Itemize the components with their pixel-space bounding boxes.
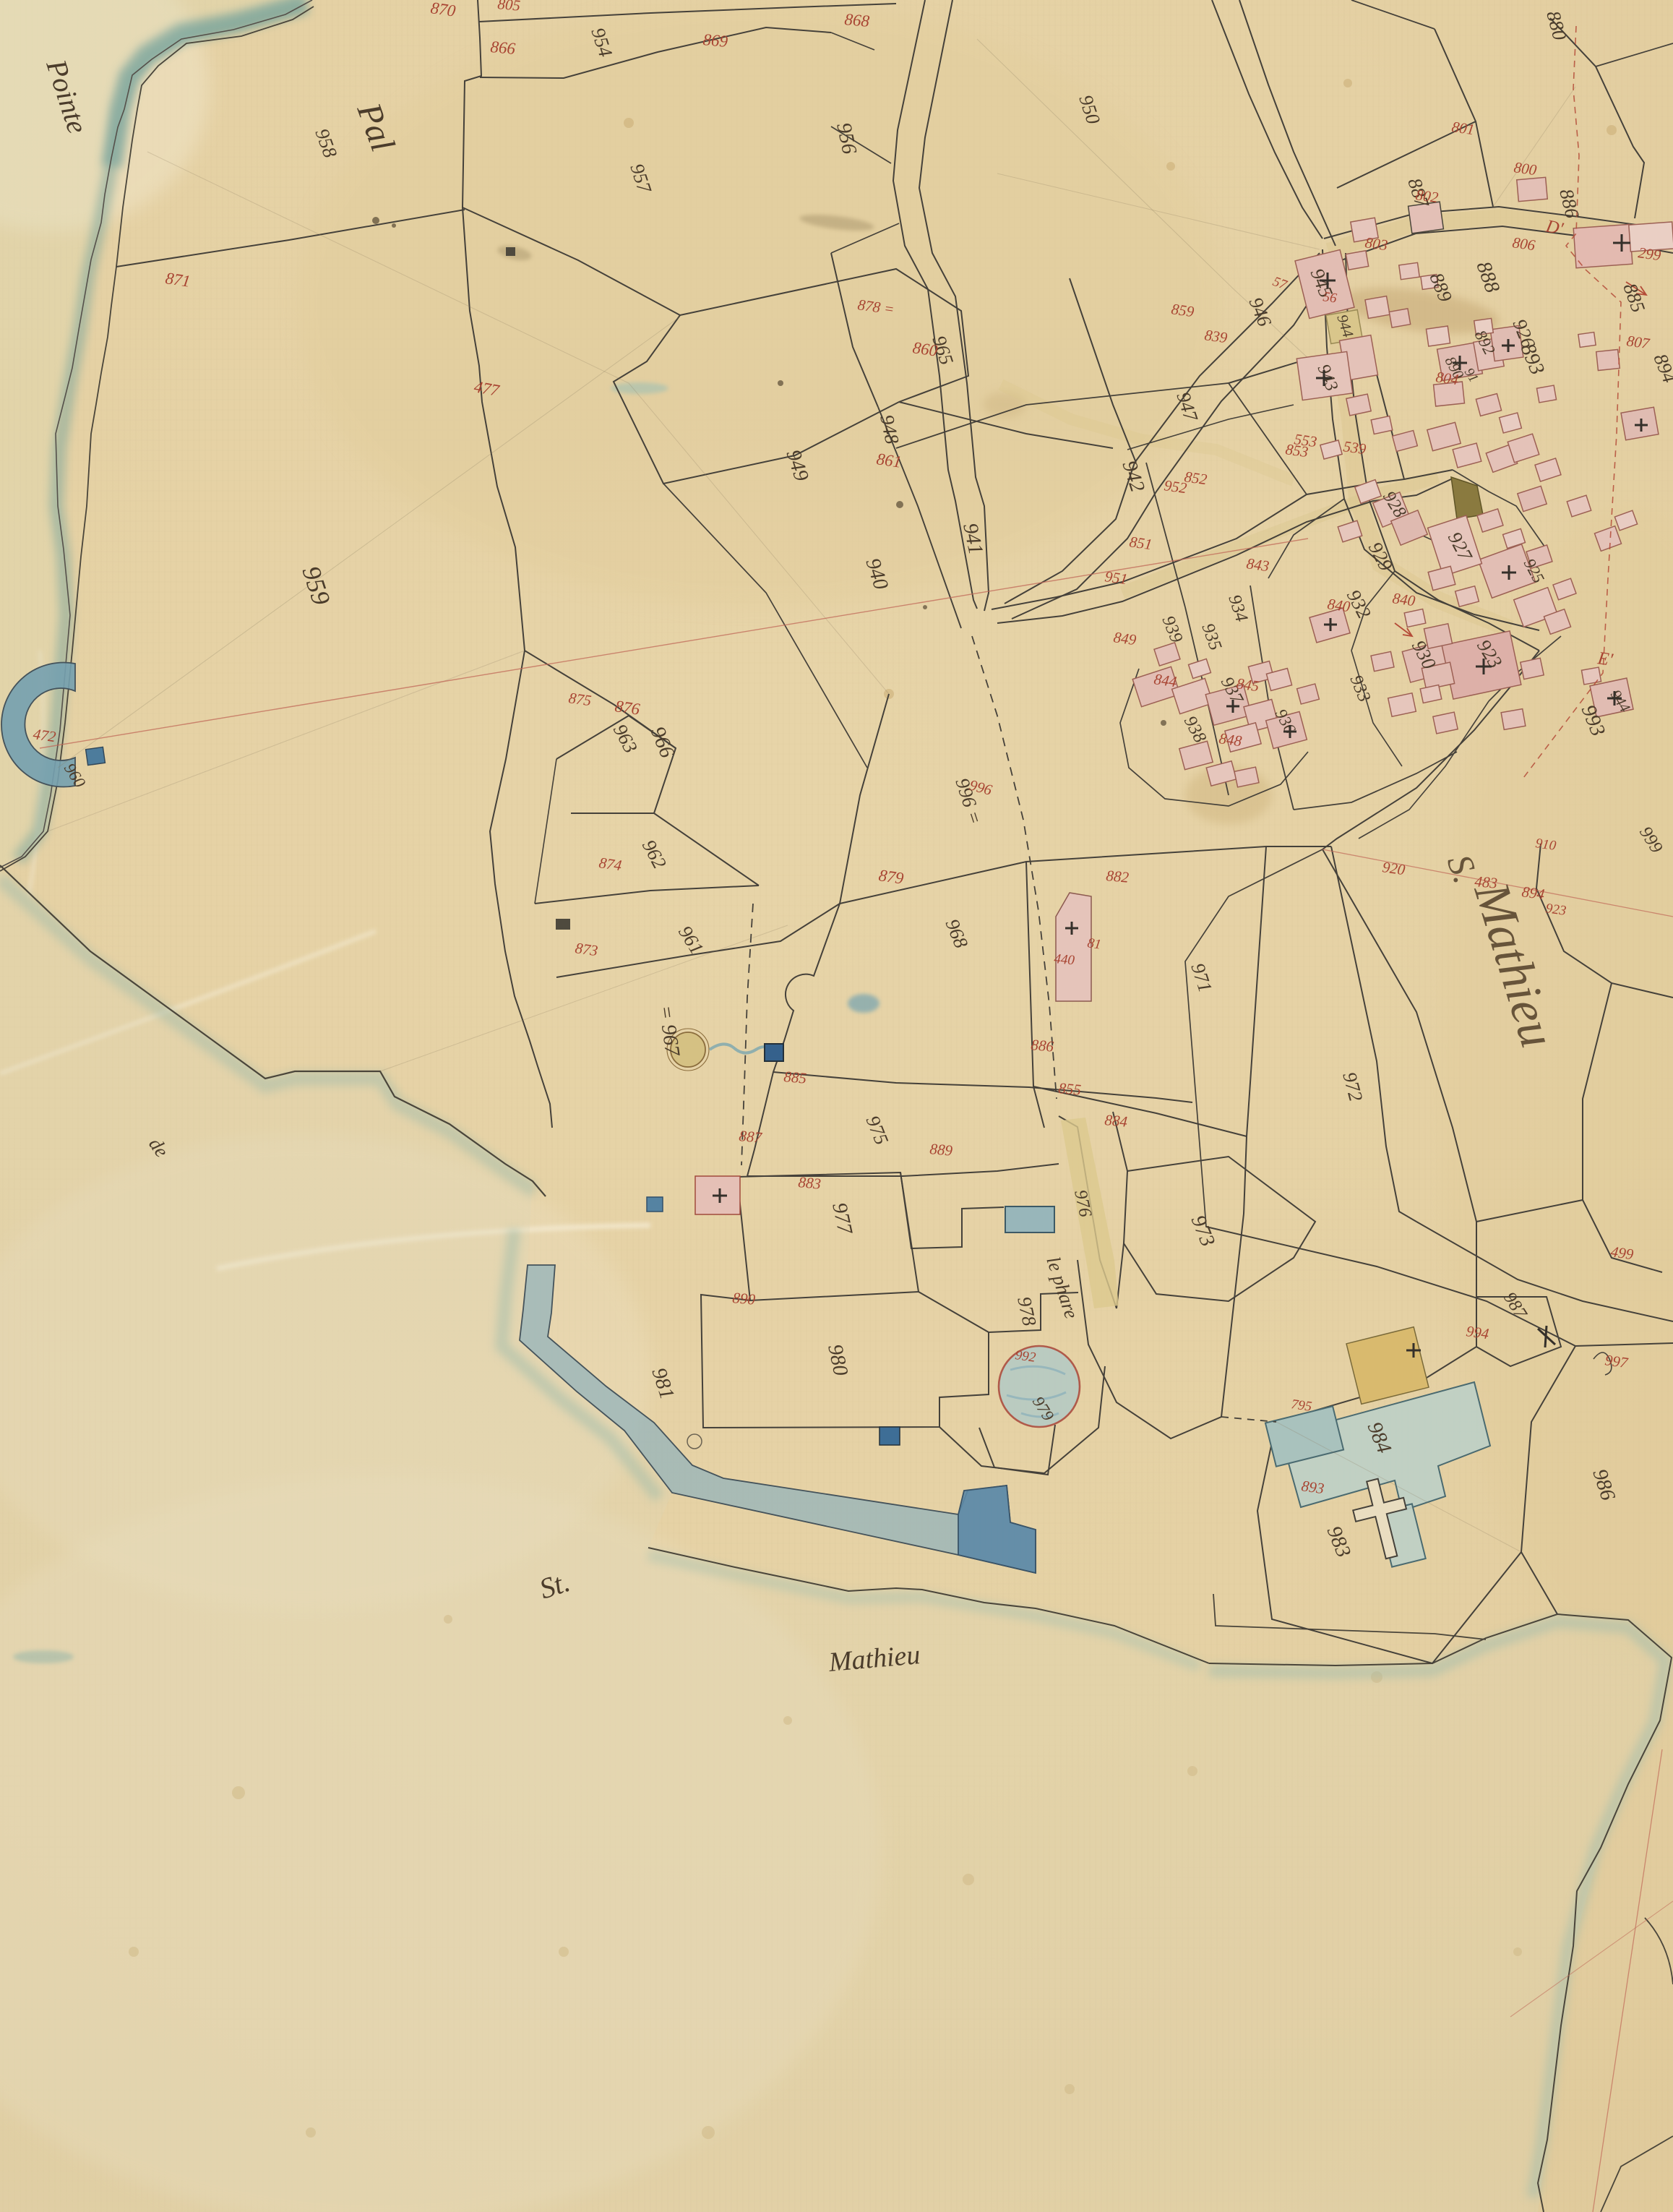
svg-text:800: 800 bbox=[1513, 158, 1538, 179]
svg-text:E': E' bbox=[1596, 648, 1614, 670]
svg-text:882: 882 bbox=[1106, 867, 1130, 886]
svg-text:952: 952 bbox=[1163, 476, 1188, 497]
svg-text:806: 806 bbox=[1511, 233, 1536, 254]
svg-text:803: 803 bbox=[1364, 233, 1389, 254]
svg-text:855: 855 bbox=[1058, 1079, 1082, 1099]
svg-text:840: 840 bbox=[1391, 589, 1416, 609]
svg-text:874: 874 bbox=[598, 854, 623, 874]
svg-text:875: 875 bbox=[567, 689, 593, 709]
svg-text:849: 849 bbox=[1112, 628, 1137, 648]
svg-text:843: 843 bbox=[1245, 554, 1270, 575]
svg-text:483: 483 bbox=[1474, 873, 1498, 892]
svg-text:873: 873 bbox=[574, 939, 599, 959]
svg-text:889: 889 bbox=[929, 1140, 954, 1159]
svg-text:951: 951 bbox=[1104, 567, 1129, 588]
svg-text:884: 884 bbox=[1104, 1111, 1129, 1131]
svg-text:805: 805 bbox=[497, 0, 521, 14]
svg-text:868: 868 bbox=[844, 10, 871, 30]
svg-text:860: 860 bbox=[911, 338, 939, 360]
svg-text:840: 840 bbox=[1326, 595, 1351, 615]
svg-text:869: 869 bbox=[702, 30, 729, 51]
svg-text:870: 870 bbox=[429, 0, 457, 20]
svg-text:804: 804 bbox=[1435, 368, 1460, 388]
svg-text:299: 299 bbox=[1637, 244, 1662, 264]
svg-text:992: 992 bbox=[1014, 1347, 1037, 1366]
svg-text:851: 851 bbox=[1128, 533, 1153, 553]
svg-text:553: 553 bbox=[1293, 430, 1318, 450]
svg-text:440: 440 bbox=[1054, 951, 1076, 968]
svg-text:499: 499 bbox=[1609, 1243, 1635, 1263]
svg-text:920: 920 bbox=[1381, 858, 1406, 878]
svg-text:871: 871 bbox=[164, 269, 192, 291]
svg-text:997: 997 bbox=[1604, 1351, 1630, 1371]
svg-text:472: 472 bbox=[32, 725, 57, 745]
svg-text:539: 539 bbox=[1342, 437, 1367, 458]
svg-text:795: 795 bbox=[1290, 1397, 1312, 1415]
svg-text:861: 861 bbox=[875, 450, 903, 471]
svg-text:994: 994 bbox=[1465, 1322, 1490, 1342]
svg-text:56: 56 bbox=[1322, 289, 1338, 306]
svg-text:890: 890 bbox=[732, 1289, 757, 1308]
svg-text:859: 859 bbox=[1170, 300, 1195, 320]
svg-text:885: 885 bbox=[783, 1068, 807, 1087]
svg-text:887: 887 bbox=[739, 1127, 764, 1146]
svg-text:802: 802 bbox=[1414, 186, 1440, 206]
svg-text:886: 886 bbox=[1031, 1036, 1055, 1055]
svg-text:910: 910 bbox=[1534, 836, 1557, 854]
svg-text:894: 894 bbox=[1521, 883, 1546, 903]
svg-text:848: 848 bbox=[1218, 729, 1243, 750]
svg-text:845: 845 bbox=[1235, 674, 1260, 695]
svg-text:893: 893 bbox=[1300, 1477, 1325, 1497]
svg-text:879: 879 bbox=[877, 866, 905, 888]
svg-text:923: 923 bbox=[1544, 901, 1567, 919]
svg-text:883: 883 bbox=[798, 1173, 822, 1193]
svg-text:807: 807 bbox=[1625, 332, 1651, 352]
svg-text:844: 844 bbox=[1153, 670, 1178, 690]
svg-text:866: 866 bbox=[490, 38, 517, 58]
svg-text:81: 81 bbox=[1086, 935, 1102, 952]
svg-text:801: 801 bbox=[1450, 118, 1476, 138]
svg-text:839: 839 bbox=[1203, 326, 1229, 346]
svg-text:876: 876 bbox=[614, 697, 641, 719]
